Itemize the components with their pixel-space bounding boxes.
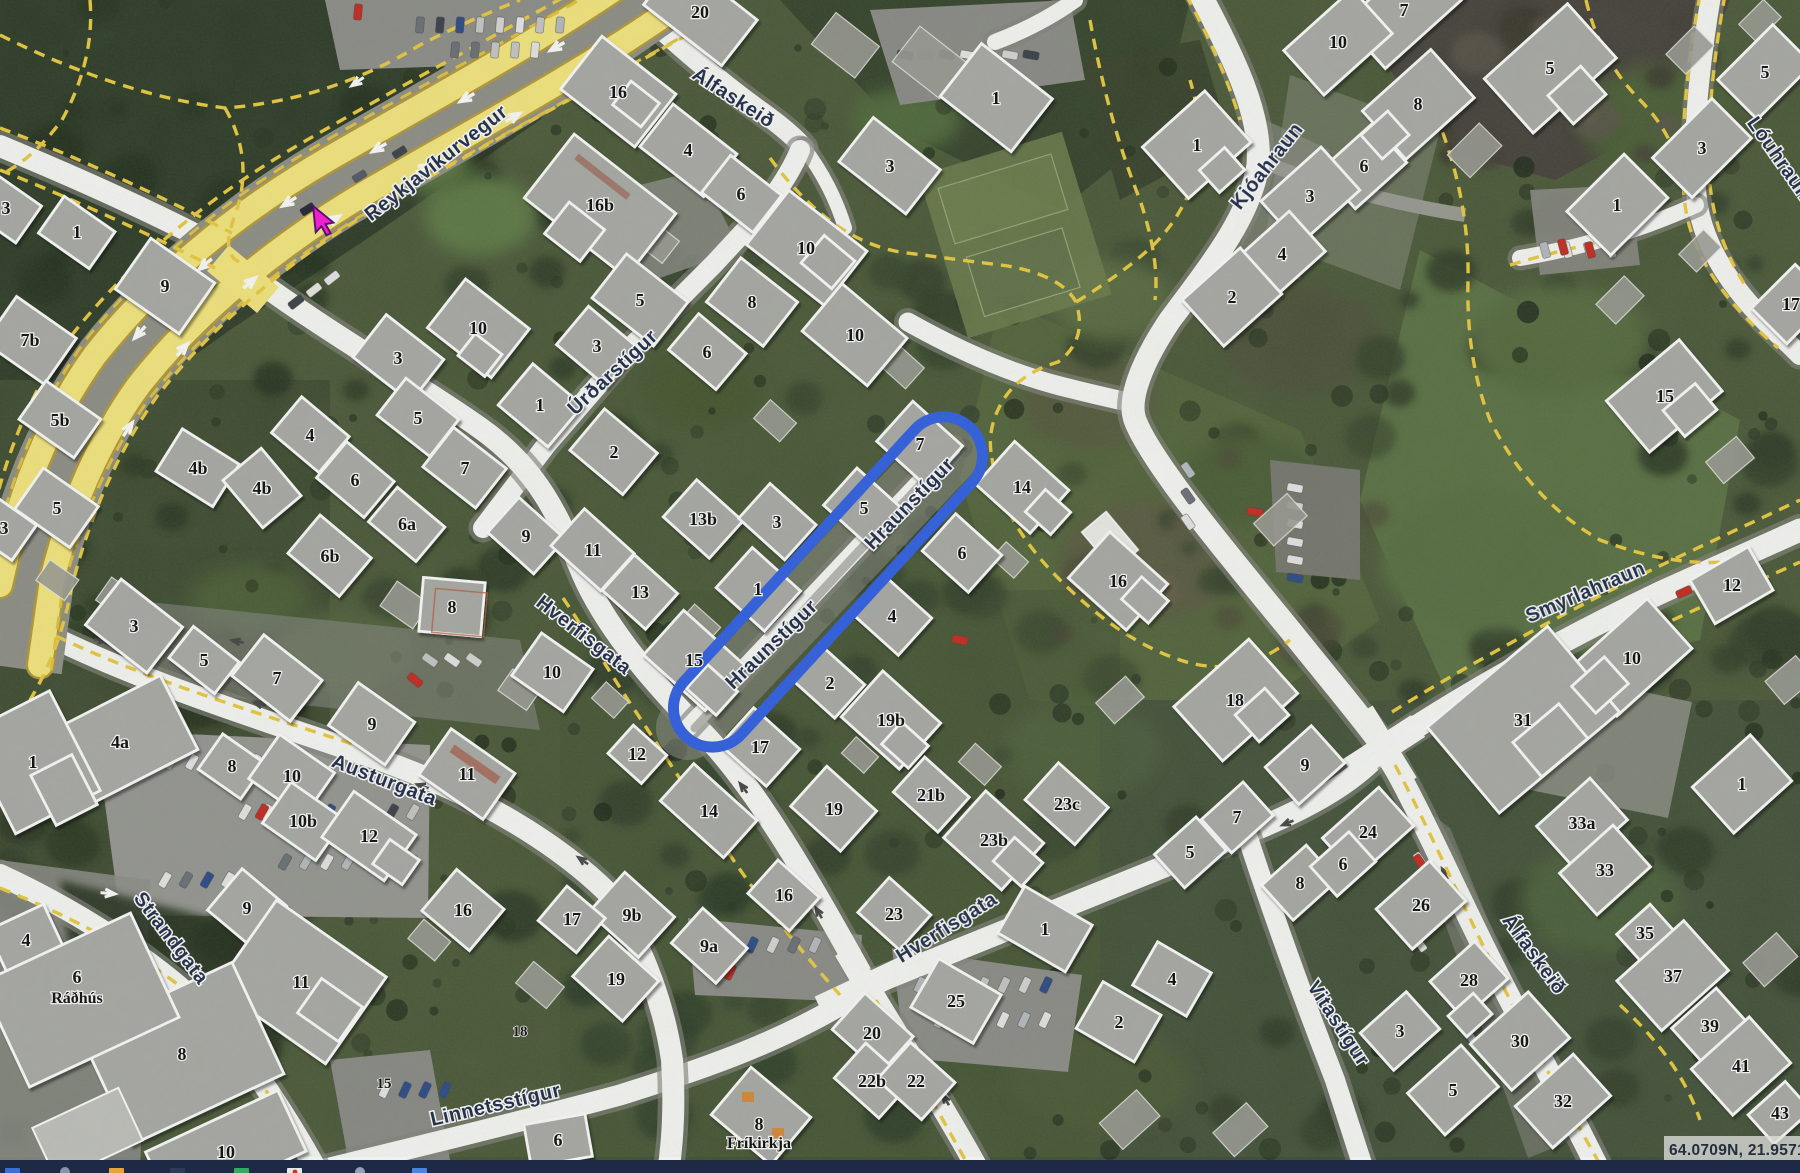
svg-text:64.0709N, 21.9571W: 64.0709N, 21.9571W [1669,1142,1800,1159]
